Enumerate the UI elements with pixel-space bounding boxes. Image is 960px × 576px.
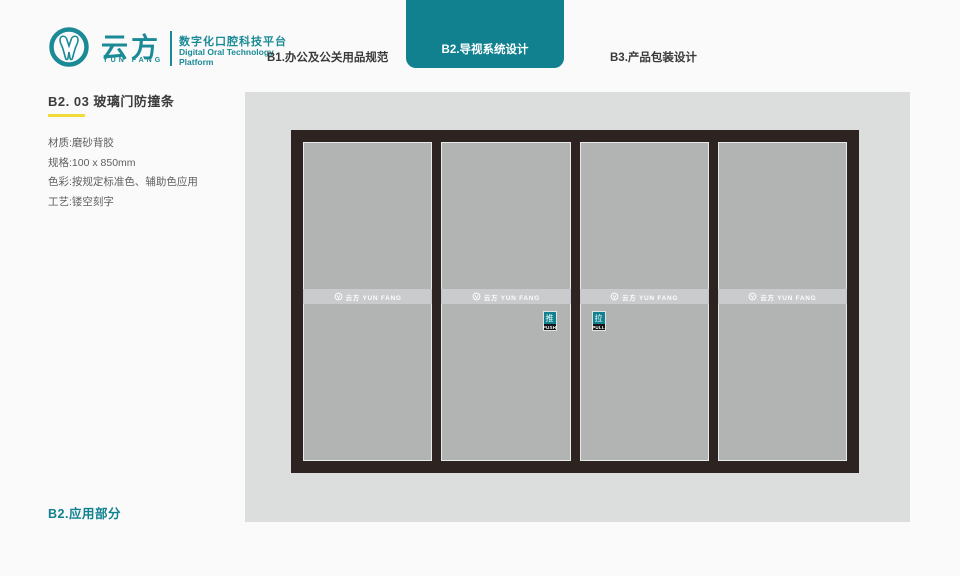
- pull-sign: 拉 PULL: [592, 311, 606, 331]
- pull-sign-en: PULL: [593, 324, 605, 330]
- section-footer-label: B2.应用部分: [48, 503, 121, 522]
- strip-logo-text: 云方 YUN FANG: [760, 292, 816, 302]
- strip-logo-text: 云方 YUN FANG: [622, 292, 678, 302]
- anti-collision-strip: 云方 YUN FANG: [303, 289, 432, 304]
- spec-craft: 工艺:镂空刻字: [48, 193, 198, 213]
- logo-divider: [170, 31, 172, 66]
- tooth-icon: [472, 292, 481, 301]
- title-underline: [48, 114, 85, 117]
- push-sign-en: PUSH: [544, 324, 556, 330]
- anti-collision-strip: 云方 YUN FANG: [580, 289, 709, 304]
- artboard: 云方 YUN FANG 云方 YUN FANG 推 PUSH: [245, 92, 910, 522]
- glass-panel-3: 云方 YUN FANG 拉 PULL: [580, 142, 709, 461]
- spec-color: 色彩:按规定标准色、辅助色应用: [48, 173, 198, 193]
- tooth-icon: [748, 292, 757, 301]
- tooth-icon: [610, 292, 619, 301]
- tab-b2-label: B2.导视系统设计: [442, 41, 529, 57]
- glass-panel-4: 云方 YUN FANG: [718, 142, 847, 461]
- tab-b2-signage-system[interactable]: B2.导视系统设计: [406, 0, 564, 68]
- anti-collision-strip: 云方 YUN FANG: [718, 289, 847, 304]
- glass-door-illustration: 云方 YUN FANG 云方 YUN FANG 推 PUSH: [291, 130, 859, 473]
- tooth-icon: [334, 292, 343, 301]
- page-title: B2. 03 玻璃门防撞条: [48, 91, 174, 110]
- spec-material: 材质:磨砂背胶: [48, 134, 198, 154]
- glass-panel-1: 云方 YUN FANG: [303, 142, 432, 461]
- pull-sign-cn: 拉: [593, 312, 605, 324]
- push-sign: 推 PUSH: [543, 311, 557, 331]
- tab-b1-office-supplies[interactable]: B1.办公及公关用品规范: [267, 49, 388, 65]
- anti-collision-strip: 云方 YUN FANG: [441, 289, 570, 304]
- spec-size: 规格:100 x 850mm: [48, 154, 198, 174]
- brand-name-en: YUN FANG: [103, 57, 163, 64]
- tooth-logo-icon: [46, 25, 93, 70]
- strip-logo-text: 云方 YUN FANG: [346, 292, 402, 302]
- brand-tagline-en-line2: Platform: [179, 57, 274, 67]
- brand-tagline-en-line1: Digital Oral Technology: [179, 47, 274, 57]
- tab-b3-packaging[interactable]: B3.产品包装设计: [610, 49, 697, 65]
- glass-panel-2: 云方 YUN FANG 推 PUSH: [441, 142, 570, 461]
- push-sign-cn: 推: [544, 312, 556, 324]
- brand-tagline-en: Digital Oral Technology Platform: [179, 47, 274, 67]
- strip-logo-text: 云方 YUN FANG: [484, 292, 540, 302]
- spec-list: 材质:磨砂背胶 规格:100 x 850mm 色彩:按规定标准色、辅助色应用 工…: [48, 134, 198, 212]
